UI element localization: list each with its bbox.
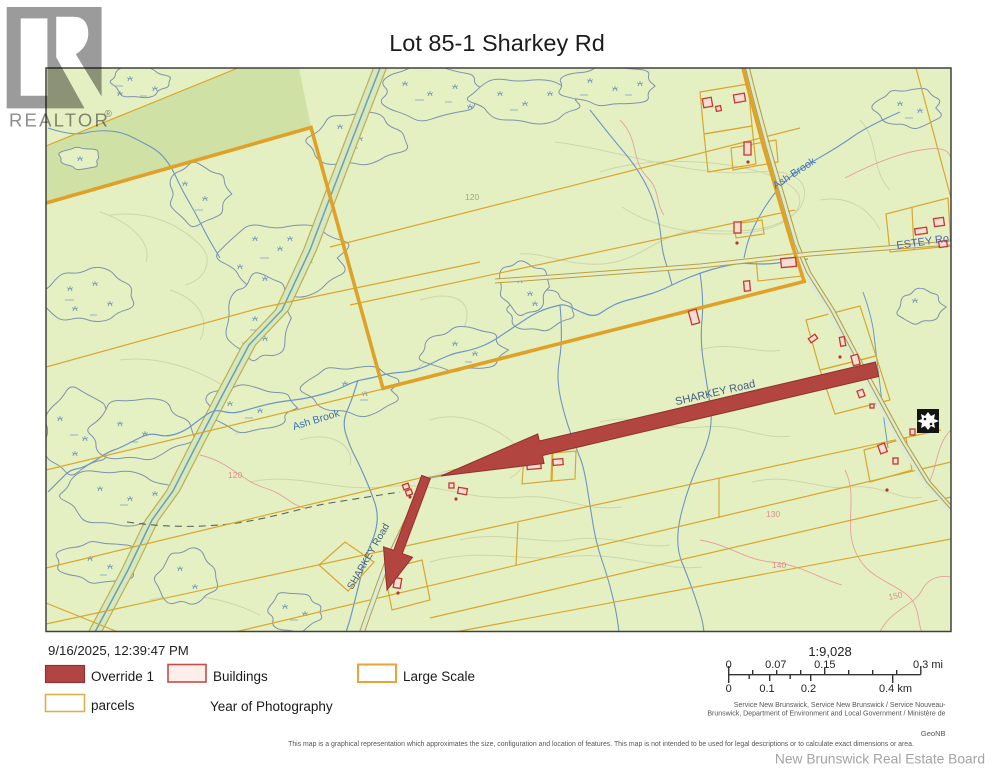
- svg-text:9/16/2025, 12:39:47 PM: 9/16/2025, 12:39:47 PM: [48, 643, 189, 658]
- svg-text:130: 130: [766, 509, 780, 519]
- svg-text:Override 1: Override 1: [91, 669, 154, 684]
- svg-text:0.4 km: 0.4 km: [879, 683, 912, 695]
- svg-text:®: ®: [105, 109, 113, 120]
- svg-text:New Brunswick Real Estate Boar: New Brunswick Real Estate Board: [775, 752, 985, 767]
- svg-text:REALTOR: REALTOR: [9, 110, 110, 131]
- svg-text:This map is a graphical repres: This map is a graphical representation w…: [288, 741, 914, 748]
- svg-text:parcels: parcels: [91, 698, 135, 713]
- svg-text:1:9,028: 1:9,028: [808, 644, 851, 659]
- svg-text:0: 0: [726, 683, 732, 695]
- svg-text:0.3 mi: 0.3 mi: [913, 659, 943, 671]
- svg-text:0.1: 0.1: [759, 683, 774, 695]
- svg-text:Year of Photography: Year of Photography: [210, 699, 333, 714]
- svg-text:GeoNB: GeoNB: [921, 729, 946, 738]
- svg-text:140: 140: [772, 560, 786, 570]
- svg-text:0.07: 0.07: [765, 659, 786, 671]
- svg-text:Lot 85-1 Sharkey Rd: Lot 85-1 Sharkey Rd: [389, 30, 605, 56]
- svg-text:Brunswick, Department of Envir: Brunswick, Department of Environment and…: [707, 711, 945, 718]
- svg-text:120: 120: [228, 470, 242, 480]
- svg-text:Buildings: Buildings: [213, 669, 268, 684]
- svg-text:120: 120: [465, 192, 479, 202]
- svg-text:Service New Brunswick, Service: Service New Brunswick, Service New Bruns…: [734, 702, 946, 709]
- svg-text:Large Scale: Large Scale: [403, 669, 475, 684]
- svg-text:0.2: 0.2: [801, 683, 816, 695]
